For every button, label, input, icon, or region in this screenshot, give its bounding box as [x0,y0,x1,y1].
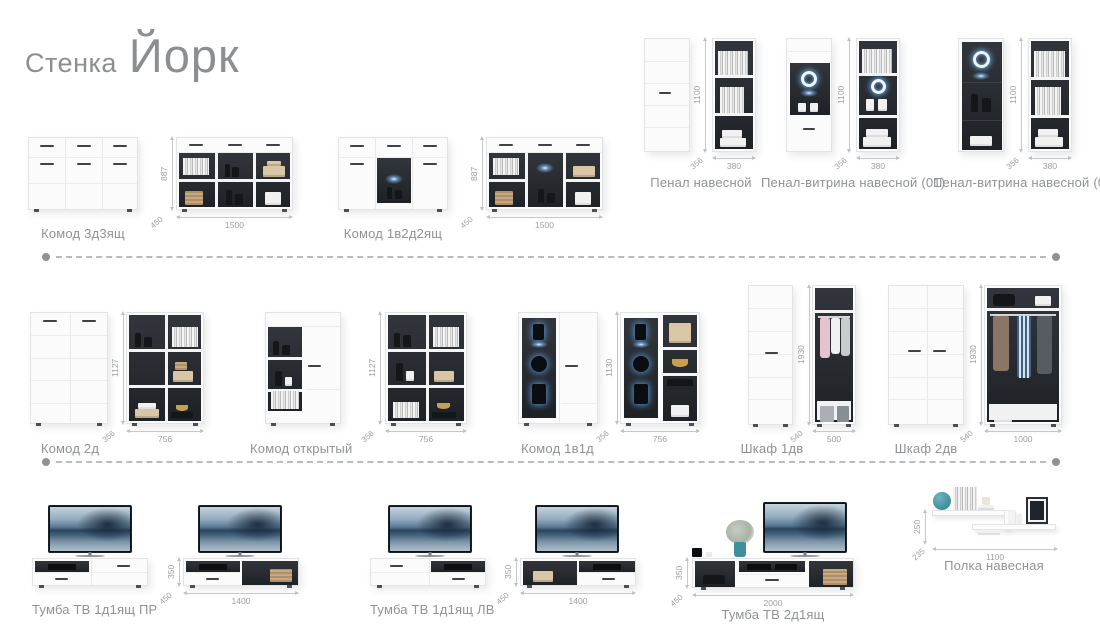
height-dim: 1100 [694,38,706,152]
product-label: Комод 1в1д [505,441,610,456]
paper-stack-decor [978,530,1000,535]
poster-frame-decor [1026,497,1048,524]
product-tumba-tv-pr: Тумба ТВ 1д1ящ ПР 350 1400 450 [32,505,302,625]
product-tumba-tv-2d: 350 2000 450 Тумба ТВ 2д1ящ [676,502,866,627]
product-penal: 1100 380 356 Пенал навесной [644,38,768,193]
closed-view [958,38,1004,152]
width-dim: 756 [126,428,204,442]
closed-view [748,285,793,425]
height-dim: 1100 [1010,38,1022,152]
width-dim: 2000 [692,592,854,606]
catalog-page: Стенка Йорк 887 [0,0,1100,637]
product-label: Тумба ТВ 1д1ящ ЛВ [370,602,486,617]
tv [198,505,282,553]
width-dim: 1500 [176,214,293,228]
depth-dim: 450 [158,591,174,606]
height-dim: 350 [505,558,517,586]
page-title: Стенка Йорк [25,28,240,83]
depth-dim: 450 [459,215,475,230]
product-label: Пенал навесной [636,175,766,190]
width-dim: 1400 [183,590,299,604]
open-view [1028,38,1072,152]
closed-view [32,558,148,586]
depth-dim: 450 [495,591,511,606]
shelf-top-tier [932,510,1012,516]
title-prefix: Стенка [25,48,117,79]
product-komod-1v1d: 1130 756 356 Комод 1в1д [518,312,708,457]
product-label: Полка навесная [924,558,1064,573]
product-label: Пенал-витрина навесной (02) [933,175,1100,190]
depth-dim: 356 [1005,156,1021,171]
closed-view [338,137,448,210]
product-label: Шкаф 2дв [876,441,976,456]
open-view [126,312,204,424]
width-dim: 380 [1028,155,1072,169]
product-komod-3d3: 887 1500 450 Комод 3д3ящ [28,137,298,247]
product-komod-2d: 1127 756 356 Комод 2д [30,312,225,457]
width-dim: 756 [385,428,467,442]
depth-dim: 450 [149,215,165,230]
height-dim: 350 [676,558,688,588]
height-dim: 1127 [112,312,124,424]
cup-decor [706,552,712,557]
flowers-decor [726,520,754,544]
product-label: Комод 3д3ящ [28,226,138,241]
closed-view [644,38,690,152]
height-dim: 1930 [970,285,982,425]
product-tumba-tv-lv: Тумба ТВ 1д1ящ ЛВ 350 1400 450 [370,505,640,625]
height-dim: 887 [471,137,483,210]
product-komod-otkryty: 1127 756 356 Комод открытый [265,312,480,457]
open-view [176,137,293,210]
width-dim: 756 [620,428,700,442]
depth-dim: 356 [833,156,849,171]
product-polka: 250 1100 235 Полка навесная [914,484,1069,579]
vase-decor [1017,514,1022,524]
closed-view [786,38,832,152]
open-view [712,38,756,152]
closed-view [265,312,341,424]
vase-decor [1008,510,1015,524]
width-dim: 500 [812,428,856,442]
speaker-decor [692,548,702,557]
open-view [620,312,700,424]
product-shkaf-2dv: 1930 1000 540 Шкаф 2дв [888,285,1068,457]
height-dim: 250 [914,510,926,544]
product-shkaf-1dv: 1930 500 540 Шкаф 1дв [748,285,868,457]
open-view [520,558,636,586]
open-view [183,558,299,586]
product-penal-vitrina-02: 1100 380 356 Пенал-витрина навесной (02) [958,38,1082,193]
cup-decor [982,497,990,505]
tv [48,505,132,553]
height-dim: 1930 [798,285,810,425]
closed-view [28,137,138,210]
width-dim: 380 [856,155,900,169]
product-penal-vitrina-01: 1100 380 356 Пенал-витрина навесной (01) [786,38,910,193]
height-dim: 1127 [369,312,381,424]
closed-view [888,285,964,425]
width-dim: 1500 [486,214,603,228]
ball-vase-decor [933,492,951,510]
depth-dim: 356 [360,429,376,444]
tv [535,505,619,553]
product-komod-1v2d2: 887 1500 450 Комод 1в2д2ящ [338,137,608,247]
separator-2 [56,461,1046,463]
open-view [856,38,900,152]
product-label: Тумба ТВ 1д1ящ ПР [32,602,148,617]
title-name: Йорк [129,28,240,83]
product-label: Комод 1в2д2ящ [338,226,448,241]
product-label: Шкаф 1дв [722,441,822,456]
open-view [486,137,603,210]
closed-view [30,312,108,424]
width-dim: 380 [712,155,756,169]
closed-view [518,312,598,424]
height-dim: 1130 [606,312,618,424]
height-dim: 350 [168,558,180,586]
height-dim: 887 [161,137,173,210]
product-label: Комод открытый [250,441,350,456]
width-dim: 1400 [520,590,636,604]
tv [763,502,847,553]
open-view [692,558,854,588]
open-view [812,285,856,425]
open-view [984,285,1062,425]
separator-1 [56,256,1046,258]
books-decor [953,487,977,510]
width-dim: 1000 [984,428,1062,442]
depth-dim: 356 [689,156,705,171]
height-dim: 1100 [838,38,850,152]
product-label: Комод 2д [20,441,120,456]
closed-view [370,558,486,586]
depth-dim: 450 [669,593,685,608]
open-view [385,312,467,424]
product-label: Пенал-витрина навесной (01) [761,175,931,190]
product-label: Тумба ТВ 2д1ящ [692,607,854,622]
vase-decor [734,542,746,557]
tv [388,505,472,553]
